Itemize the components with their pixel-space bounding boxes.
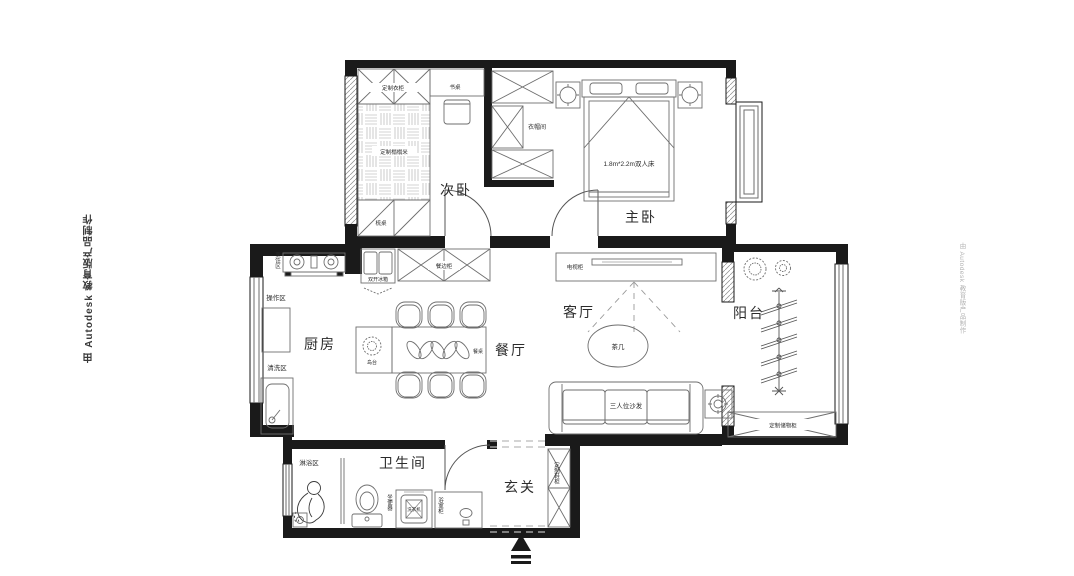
plant-icon-small xyxy=(776,261,791,276)
shoe-cabinet xyxy=(548,449,570,527)
sideboard-label: 餐边柜 xyxy=(436,262,453,270)
storage-cabinet-label: 定制储物柜 xyxy=(769,422,797,430)
double-bed-label: 1.8m*2.2m双人床 xyxy=(604,159,655,168)
dresser-cabinet xyxy=(358,200,430,236)
autodesk-watermark-left: 由 Autodesk 教育版产品制作 xyxy=(82,213,97,362)
entry-label: 玄关 xyxy=(504,479,536,495)
island-label: 岛台 xyxy=(367,359,377,366)
custom-wardrobe-label: 定制衣柜 xyxy=(382,84,405,92)
bathroom-window xyxy=(283,464,292,516)
secondary-bedroom-label: 次卧 xyxy=(440,182,472,198)
double-fridge-label: 双开冰箱 xyxy=(368,276,388,283)
cooking-zone-label: 烹饪区 xyxy=(274,251,281,269)
floor-plan-drawing: 定制衣柜 书桌 定制榻榻米 梳桌 次卧 衣帽间 1.8 xyxy=(0,0,1074,576)
dining-table xyxy=(392,327,486,373)
stove-counter xyxy=(283,253,345,276)
bay-window xyxy=(736,102,762,202)
shower-partition xyxy=(341,458,344,524)
entry-threshold xyxy=(490,441,545,564)
toilet-label: 坐便器 xyxy=(386,493,393,512)
prep-zone-label: 操作区 xyxy=(266,293,286,302)
living-room-label: 客厅 xyxy=(563,304,595,320)
bathroom-door xyxy=(445,445,490,490)
master-bedroom xyxy=(556,80,702,201)
custom-tatami-label: 定制榻榻米 xyxy=(380,148,408,156)
balcony-window xyxy=(835,264,848,424)
island-table xyxy=(356,327,392,373)
bathroom-label: 卫生间 xyxy=(379,455,427,471)
nightstand-left xyxy=(556,82,580,108)
dresser-label: 梳桌 xyxy=(375,219,387,227)
cloakroom-label: 衣帽间 xyxy=(528,123,546,131)
floor-plan-canvas: 由 Autodesk 教育版产品制作 由 Autodesk 教育版产品制作 xyxy=(0,0,1074,576)
shoe-cabinet-label: 定制鞋柜 xyxy=(553,461,560,486)
kitchen-label: 厨房 xyxy=(304,336,336,352)
master-bedroom-label: 主卧 xyxy=(625,209,657,225)
dining-table-label: 餐桌 xyxy=(473,348,483,355)
washing-machine-label: 洗衣机 xyxy=(407,506,421,513)
tea-table-label: 茶几 xyxy=(612,342,626,351)
prep-counter xyxy=(262,308,290,352)
toilet-icon xyxy=(352,485,382,527)
balcony-label: 阳台 xyxy=(733,305,765,321)
sofa-label: 三人位沙发 xyxy=(610,401,643,410)
double-bed xyxy=(582,80,676,201)
desk-area xyxy=(430,69,484,124)
desk-label: 书桌 xyxy=(449,83,461,91)
double-fridge xyxy=(361,249,395,294)
balcony xyxy=(728,258,836,437)
plant-icon xyxy=(744,258,766,280)
vanity-label: 浴室柜 xyxy=(437,496,444,515)
drying-rack xyxy=(761,288,797,395)
shower-zone-label: 淋浴区 xyxy=(299,458,319,467)
dining-set xyxy=(356,302,486,398)
dining-room-label: 餐厅 xyxy=(495,342,527,358)
nightstand-right xyxy=(678,82,702,108)
washing-zone-label: 清洗区 xyxy=(267,363,287,372)
autodesk-watermark-right: 由 Autodesk 教育版产品制作 xyxy=(956,242,966,334)
tv-cabinet-label: 电视柜 xyxy=(567,263,584,271)
